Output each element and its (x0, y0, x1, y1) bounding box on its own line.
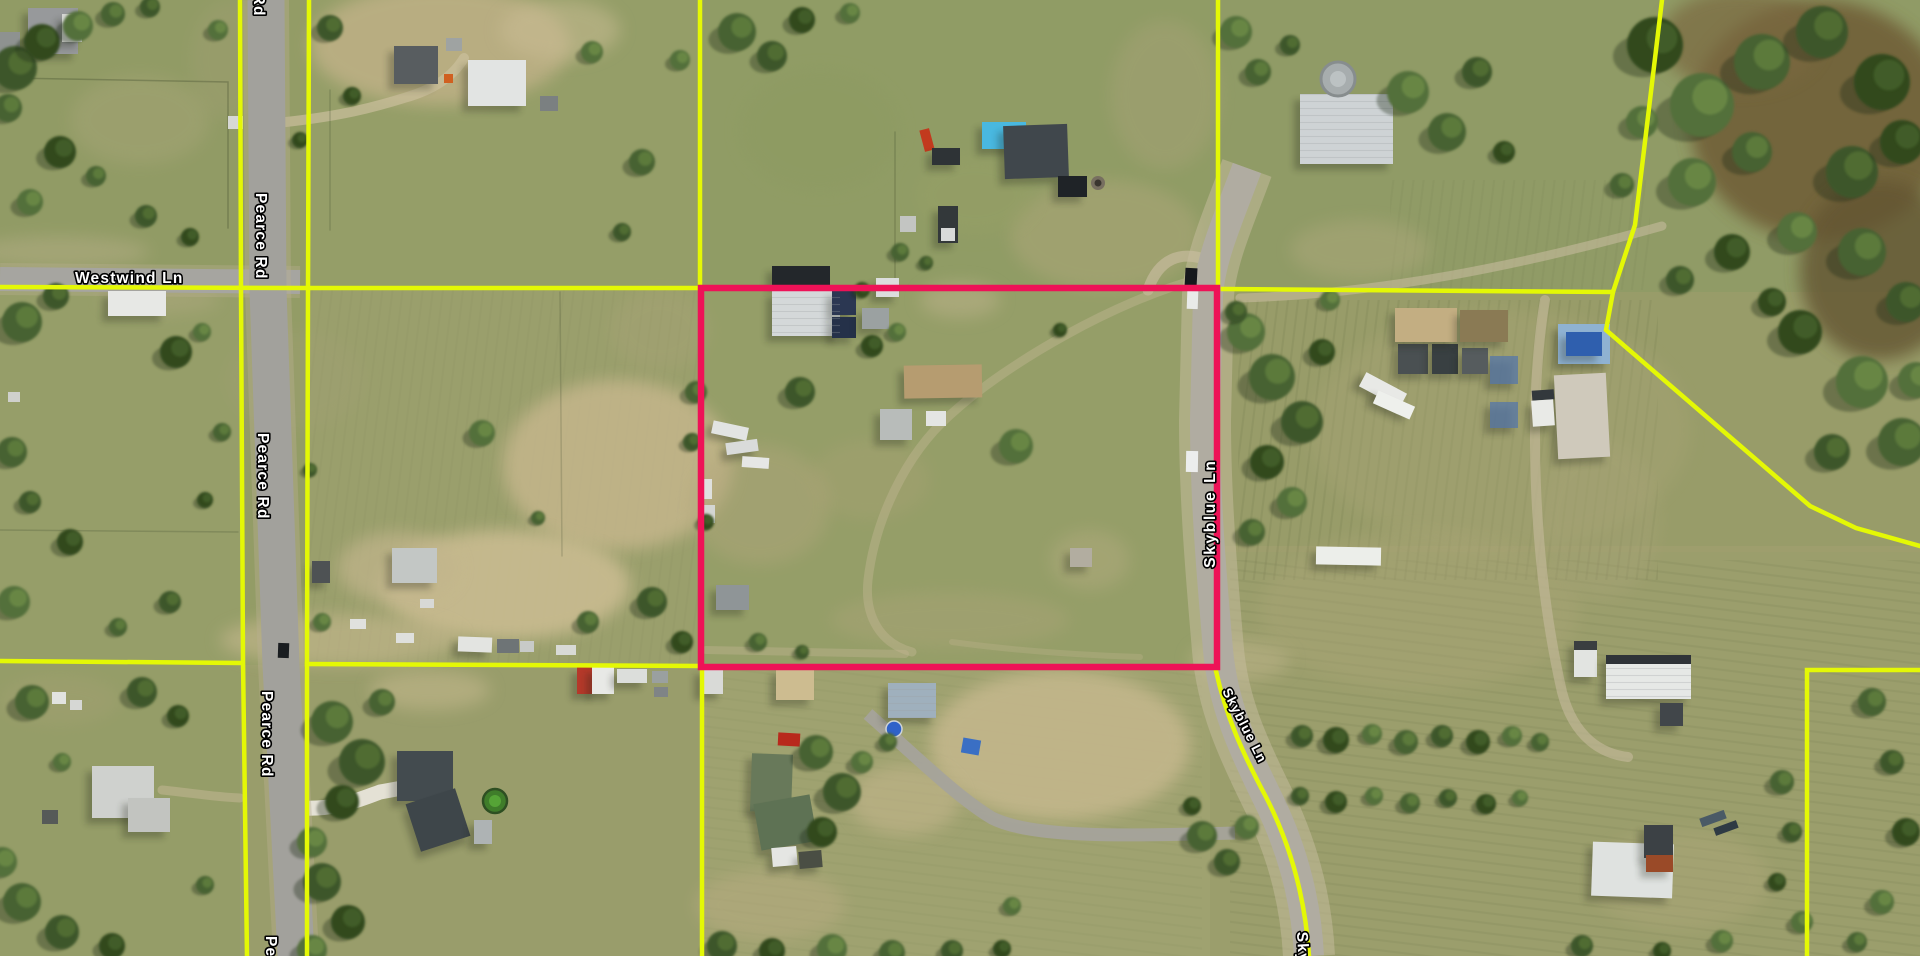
tree-highlight (1768, 291, 1783, 306)
structure-roof-texture (1606, 664, 1691, 699)
structure (961, 738, 981, 756)
tree-highlight (187, 230, 197, 240)
tree-highlight (1262, 448, 1281, 467)
tree-highlight (1618, 175, 1631, 188)
tree-highlight (1287, 37, 1298, 48)
terrain-patch (1010, 180, 1200, 290)
structure (1644, 825, 1673, 858)
tree-highlight (869, 337, 881, 349)
water-tank-top (1330, 71, 1346, 87)
structure (350, 619, 366, 629)
structure (458, 636, 493, 652)
parcel-line (0, 287, 700, 288)
tree-highlight (1407, 795, 1418, 806)
tree-highlight (175, 707, 187, 719)
tree-highlight (1009, 899, 1019, 909)
tree-highlight (1231, 19, 1249, 37)
structure (8, 392, 20, 402)
structure (394, 46, 438, 84)
tree-highlight (1483, 796, 1494, 807)
structure (904, 364, 983, 398)
structure (1003, 124, 1069, 179)
tree-highlight (74, 14, 91, 31)
tree-highlight (1844, 151, 1873, 180)
tree-highlight (1402, 732, 1415, 745)
tree-highlight (999, 942, 1009, 952)
structure (1490, 356, 1518, 384)
structure (778, 732, 801, 746)
tree-highlight (885, 735, 895, 745)
structure (1398, 344, 1428, 374)
structure (396, 633, 414, 643)
tree-highlight (536, 512, 544, 520)
structure (1432, 344, 1458, 374)
tree-highlight (828, 937, 845, 954)
tree-highlight (836, 777, 857, 798)
tree-highlight (16, 887, 37, 908)
tree-highlight (319, 615, 329, 625)
structure (392, 548, 437, 583)
tree-highlight (800, 646, 808, 654)
tree-highlight (847, 5, 858, 16)
structure (1187, 291, 1199, 309)
tree-highlight (1402, 75, 1425, 98)
tree-highlight (1198, 824, 1215, 841)
tree-highlight (619, 225, 629, 235)
tree-highlight (1647, 23, 1678, 54)
structure (1606, 655, 1691, 665)
structure-roof-texture (772, 291, 840, 336)
terrain-patch (740, 70, 900, 190)
structure (1566, 332, 1602, 356)
tree-highlight (768, 941, 782, 955)
tree-highlight (16, 306, 38, 328)
structure (70, 700, 82, 710)
structure-roof-texture (888, 683, 936, 718)
structure (278, 643, 290, 658)
tree-highlight (138, 680, 155, 697)
structure (1574, 641, 1597, 650)
tree-highlight (1248, 522, 1262, 536)
tree-highlight (1676, 269, 1691, 284)
tree-highlight (718, 934, 735, 951)
tree-highlight (1297, 789, 1307, 799)
parcel-line (307, 664, 702, 666)
tree-highlight (203, 494, 212, 503)
tree-highlight (109, 4, 122, 17)
tree-highlight (689, 435, 699, 445)
tree-highlight (1537, 735, 1547, 745)
tree-highlight (55, 139, 73, 157)
tree-highlight (1058, 324, 1066, 332)
structure (900, 216, 916, 232)
tree-highlight (679, 633, 691, 645)
tree-highlight (796, 380, 813, 397)
structure (1531, 399, 1555, 426)
tree-highlight (27, 688, 46, 707)
structure (1186, 451, 1198, 472)
tree-highlight (1509, 728, 1520, 739)
tree-highlight (37, 28, 57, 48)
structure (1070, 548, 1092, 567)
tree-highlight (1791, 216, 1813, 238)
terrain-patch (1260, 530, 1580, 690)
tree-highlight (1659, 944, 1669, 954)
tree-highlight (1778, 772, 1791, 785)
tree-highlight (66, 532, 80, 546)
tree-highlight (1868, 691, 1883, 706)
tree-highlight (1902, 821, 1917, 836)
tree-highlight (1265, 359, 1290, 384)
tree-highlight (4, 97, 19, 112)
structure (108, 291, 166, 316)
tree-highlight (308, 938, 325, 955)
tree-highlight (1874, 60, 1905, 91)
terrain-patch (1290, 220, 1430, 280)
tree-highlight (894, 325, 904, 335)
structure (1532, 389, 1555, 401)
structure (1395, 308, 1457, 342)
pond-center (489, 795, 501, 807)
terrain-patch (695, 870, 845, 940)
tree-highlight (1895, 124, 1919, 148)
tree-highlight (859, 753, 871, 765)
tree-highlight (811, 738, 830, 757)
structure (926, 411, 946, 426)
tree-highlight (648, 590, 665, 607)
tree-highlight (818, 820, 835, 837)
structure (932, 148, 960, 165)
tree-highlight (326, 705, 349, 728)
tree-highlight (1327, 292, 1338, 303)
structure (128, 798, 170, 832)
tree-highlight (1789, 824, 1800, 835)
tree-highlight (924, 257, 932, 265)
tree-highlight (1727, 238, 1747, 258)
tree-highlight (143, 207, 155, 219)
structure (1460, 310, 1508, 342)
structure (1660, 703, 1683, 726)
tree-highlight (108, 936, 122, 950)
structure (716, 585, 749, 610)
structure (444, 74, 453, 83)
road-label-skyblue-1: Skyblue Ln (1202, 459, 1219, 568)
tree-highlight (199, 325, 209, 335)
tree-highlight (1011, 432, 1030, 451)
tree-highlight (1296, 405, 1319, 428)
structure (1058, 176, 1087, 197)
tree-highlight (1369, 726, 1380, 737)
tree-highlight (1579, 937, 1591, 949)
tree-highlight (298, 134, 307, 143)
road-label-pearce-2: Pearce Rd (254, 433, 271, 520)
tree-highlight (1692, 79, 1727, 114)
tree-highlight (219, 425, 229, 435)
tree-highlight (349, 89, 359, 99)
tree-highlight (1814, 11, 1843, 40)
tree-highlight (1332, 730, 1346, 744)
structure (941, 228, 955, 241)
tree-highlight (1439, 727, 1451, 739)
road-label-pearce-top: Pearce Rd (250, 0, 267, 17)
structure (42, 810, 58, 824)
tree-highlight (26, 192, 40, 206)
tree-highlight (202, 878, 212, 888)
tree-highlight (1501, 143, 1513, 155)
structure (420, 599, 434, 608)
terrain-patch (610, 290, 710, 370)
tree-highlight (1223, 852, 1237, 866)
structure (592, 667, 614, 694)
tree-highlight (1895, 423, 1920, 449)
structure (798, 850, 822, 869)
tree-highlight (897, 245, 907, 255)
tree-highlight (1371, 789, 1381, 799)
tree-highlight (589, 43, 601, 55)
tree-highlight (27, 493, 39, 505)
tree-highlight (1474, 732, 1487, 745)
structure (1316, 546, 1381, 565)
structure (468, 60, 526, 106)
road-label-westwind: Westwind Ln (75, 270, 184, 287)
structure (880, 409, 912, 440)
tree-highlight (9, 589, 27, 607)
structure (474, 820, 492, 844)
tree-highlight (798, 10, 812, 24)
tree-highlight (171, 339, 189, 357)
tree-highlight (704, 516, 713, 525)
tree-highlight (1827, 438, 1847, 458)
parcel-line (307, 0, 309, 956)
tree-highlight (1754, 40, 1785, 71)
tree-highlight (215, 22, 226, 33)
structure (776, 669, 814, 700)
structure (540, 96, 558, 111)
tree-highlight (768, 44, 785, 61)
structure (556, 645, 576, 655)
tree-highlight (731, 17, 752, 38)
tree-highlight (1888, 752, 1901, 765)
tree-highlight (1746, 136, 1768, 158)
road-label-pearce-1: Pearce Rd (252, 193, 269, 280)
tree-highlight (638, 152, 652, 166)
tree-highlight (1445, 791, 1455, 801)
aerial-imagery: Westwind Ln Pearce Rd Pearce Rd Pearce R… (0, 0, 1920, 956)
road-label-pearce-bottom: Pearce Rd (262, 936, 279, 956)
tree-highlight (1243, 817, 1256, 830)
tree-highlight (1855, 233, 1881, 259)
road-label-pearce-3: Pearce Rd (258, 691, 275, 778)
structure (772, 266, 830, 285)
tree-highlight (1854, 934, 1865, 945)
tree-highlight (1299, 727, 1311, 739)
tree-highlight (308, 830, 325, 847)
structure (520, 641, 534, 652)
tree-highlight (1719, 932, 1731, 944)
structure (617, 669, 647, 683)
structure (1554, 373, 1610, 460)
aerial-map[interactable]: Westwind Ln Pearce Rd Pearce Rd Pearce R… (0, 0, 1920, 956)
structure (862, 308, 889, 329)
structure (1462, 348, 1488, 374)
structure (52, 692, 66, 704)
tree-highlight (1333, 793, 1345, 805)
tree-highlight (1318, 342, 1332, 356)
structure (1646, 855, 1673, 872)
tree-highlight (326, 18, 340, 32)
terrain-patch (70, 75, 210, 165)
structure (652, 671, 668, 683)
tree-highlight (1793, 314, 1817, 338)
tree-highlight (316, 867, 337, 888)
tree-highlight (755, 635, 765, 645)
tree-highlight (949, 942, 961, 954)
tree-highlight (59, 755, 69, 765)
tree-highlight (337, 788, 356, 807)
structure (497, 639, 519, 653)
parcel-line (0, 661, 240, 663)
tree-highlight (478, 423, 492, 437)
tree-highlight (93, 168, 104, 179)
tree-highlight (167, 593, 179, 605)
tree-highlight (1189, 799, 1199, 809)
tree-highlight (115, 620, 125, 630)
tree-highlight (1288, 490, 1305, 507)
tree-highlight (1774, 875, 1784, 885)
tree-highlight (585, 613, 597, 625)
tree-highlight (1878, 892, 1891, 905)
tree-highlight (1254, 62, 1268, 76)
tree-highlight (57, 918, 76, 937)
tree-highlight (355, 744, 380, 769)
tree-highlight (1233, 303, 1245, 315)
tree-highlight (677, 52, 688, 63)
structure (446, 38, 462, 51)
structure (654, 687, 668, 697)
tree-highlight (1685, 163, 1711, 189)
field-tint (0, 287, 240, 663)
terrain-patch (220, 614, 460, 666)
tree-highlight (378, 692, 392, 706)
tree-highlight (1441, 117, 1462, 138)
structure (312, 561, 330, 583)
structure (742, 456, 770, 469)
tree-highlight (1854, 361, 1883, 390)
tree-highlight (343, 908, 362, 927)
tree-highlight (1473, 60, 1490, 77)
fire-pit-center (1095, 180, 1102, 187)
structure (1490, 402, 1518, 428)
tree-highlight (8, 440, 25, 457)
tree-highlight (1518, 792, 1527, 801)
terrain-patch (1110, 20, 1220, 170)
